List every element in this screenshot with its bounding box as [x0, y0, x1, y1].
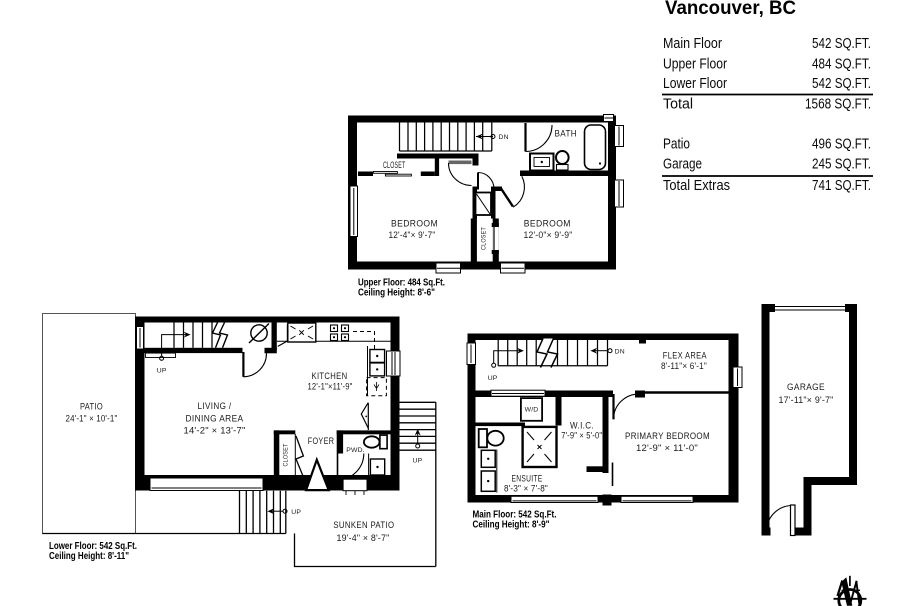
- svg-text:12'-4"× 9'-7": 12'-4"× 9'-7": [389, 230, 436, 240]
- svg-text:Vancouver, BC: Vancouver, BC: [665, 0, 796, 19]
- svg-text:17'-11"× 9'-7": 17'-11"× 9'-7": [779, 395, 834, 405]
- svg-text:741 SQ.FT.: 741 SQ.FT.: [812, 178, 871, 194]
- svg-text:DN: DN: [615, 349, 625, 356]
- svg-text:UP: UP: [413, 458, 423, 465]
- svg-text:542 SQ.FT.: 542 SQ.FT.: [812, 36, 871, 52]
- svg-text:ENSUITE: ENSUITE: [512, 474, 543, 484]
- svg-text:245 SQ.FT.: 245 SQ.FT.: [812, 157, 871, 173]
- svg-text:12'-9" × 11'-0": 12'-9" × 11'-0": [636, 443, 698, 453]
- svg-text:PRIMARY BEDROOM: PRIMARY BEDROOM: [625, 431, 710, 441]
- svg-text:484 SQ.FT.: 484 SQ.FT.: [812, 57, 871, 73]
- svg-text:Total Extras: Total Extras: [663, 178, 730, 194]
- svg-text:W/D: W/D: [525, 407, 539, 414]
- svg-text:UP: UP: [157, 368, 167, 375]
- svg-text:DINING AREA: DINING AREA: [186, 414, 244, 424]
- svg-text:Patio: Patio: [663, 137, 690, 153]
- svg-text:PATIO: PATIO: [80, 402, 103, 412]
- svg-text:BATH: BATH: [555, 129, 578, 139]
- svg-text:BEDROOM: BEDROOM: [391, 219, 438, 229]
- svg-text:CLOSET: CLOSET: [383, 160, 406, 170]
- svg-text:12'-0"× 9'-9": 12'-0"× 9'-9": [524, 230, 573, 240]
- svg-text:GARAGE: GARAGE: [787, 382, 825, 392]
- svg-text:Garage: Garage: [663, 157, 702, 173]
- svg-text:UP: UP: [291, 509, 301, 516]
- svg-text:496 SQ.FT.: 496 SQ.FT.: [812, 137, 871, 153]
- svg-text:Ceiling Height: 8'-6": Ceiling Height: 8'-6": [358, 288, 435, 299]
- svg-text:W.I.C.: W.I.C.: [570, 421, 594, 431]
- svg-text:KITCHEN: KITCHEN: [312, 371, 348, 381]
- svg-text:Upper Floor: Upper Floor: [663, 57, 727, 73]
- svg-text:LIVING /: LIVING /: [198, 401, 232, 411]
- svg-text:19'-4" × 8'-7": 19'-4" × 8'-7": [337, 533, 390, 543]
- svg-text:8'-11"× 6'-1": 8'-11"× 6'-1": [661, 361, 707, 371]
- svg-text:PWD.: PWD.: [346, 447, 365, 454]
- svg-text:542 SQ.FT.: 542 SQ.FT.: [812, 76, 871, 92]
- svg-text:8'-3" × 7'-8": 8'-3" × 7'-8": [504, 484, 548, 494]
- svg-text:12'-1"×11'-9": 12'-1"×11'-9": [308, 382, 353, 392]
- svg-text:CLOSET: CLOSET: [481, 227, 488, 250]
- svg-text:UP: UP: [488, 375, 498, 382]
- svg-text:Main Floor: Main Floor: [663, 36, 722, 52]
- svg-text:DN: DN: [499, 134, 509, 141]
- svg-text:BEDROOM: BEDROOM: [524, 219, 571, 229]
- svg-text:FOYER: FOYER: [308, 436, 335, 446]
- svg-text:Ceiling Height: 8'-9": Ceiling Height: 8'-9": [473, 520, 550, 531]
- svg-text:24'-1" × 10'-1": 24'-1" × 10'-1": [66, 414, 118, 424]
- svg-text:Ceiling Height: 8'-11": Ceiling Height: 8'-11": [49, 551, 129, 562]
- svg-text:7'-9" × 5'-0": 7'-9" × 5'-0": [561, 431, 602, 441]
- svg-text:FLEX AREA: FLEX AREA: [663, 351, 707, 361]
- svg-text:CLOSET: CLOSET: [283, 444, 290, 467]
- svg-text:1568 SQ.FT.: 1568 SQ.FT.: [805, 97, 871, 113]
- svg-text:Total: Total: [663, 97, 693, 113]
- svg-text:SUNKEN PATIO: SUNKEN PATIO: [333, 520, 394, 530]
- svg-text:14'-2" × 13'-7": 14'-2" × 13'-7": [184, 426, 246, 436]
- svg-text:Lower Floor: Lower Floor: [663, 76, 727, 92]
